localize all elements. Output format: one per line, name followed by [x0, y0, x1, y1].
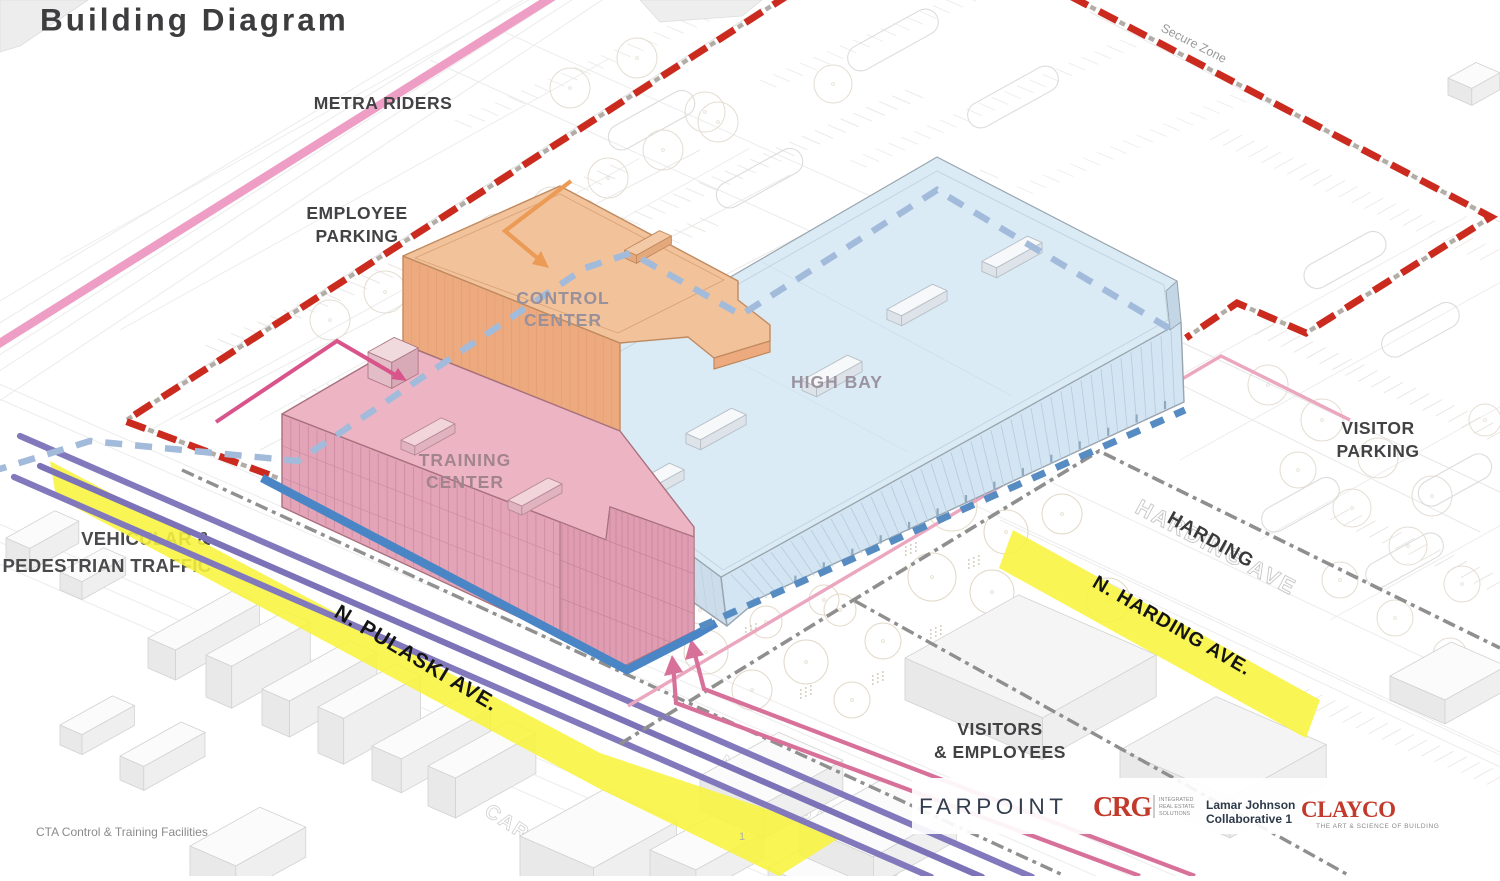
svg-text:PARKING: PARKING: [316, 226, 399, 246]
svg-text:CONTROL: CONTROL: [516, 288, 610, 308]
svg-text:TRAINING: TRAINING: [419, 450, 512, 470]
svg-text:REAL ESTATE: REAL ESTATE: [1159, 804, 1195, 810]
svg-text:CENTER: CENTER: [524, 310, 602, 330]
svg-text:HIGH BAY: HIGH BAY: [791, 372, 883, 392]
svg-text:CENTER: CENTER: [426, 472, 504, 492]
svg-text:METRA RIDERS: METRA RIDERS: [314, 93, 453, 113]
svg-text:CLAYCO: CLAYCO: [1301, 797, 1396, 822]
svg-text:Lamar Johnson: Lamar Johnson: [1206, 798, 1295, 812]
svg-text:VISITORS: VISITORS: [957, 719, 1042, 739]
svg-text:& EMPLOYEES: & EMPLOYEES: [934, 742, 1066, 762]
svg-text:Building Diagram: Building Diagram: [40, 2, 349, 38]
svg-text:EMPLOYEE: EMPLOYEE: [306, 203, 407, 223]
svg-text:SOLUTIONS: SOLUTIONS: [1159, 811, 1191, 817]
svg-text:CRG: CRG: [1093, 792, 1152, 823]
svg-text:Collaborative 1: Collaborative 1: [1206, 812, 1292, 826]
svg-text:INTEGRATED: INTEGRATED: [1159, 797, 1193, 803]
svg-text:THE ART & SCIENCE OF BUILDING: THE ART & SCIENCE OF BUILDING: [1316, 823, 1439, 830]
svg-text:CTA Control & Training Facilit: CTA Control & Training Facilities: [36, 825, 208, 839]
svg-text:PARKING: PARKING: [1337, 441, 1420, 461]
svg-text:FARPOINT: FARPOINT: [919, 794, 1068, 819]
svg-text:1: 1: [739, 831, 745, 843]
svg-text:VISITOR: VISITOR: [1341, 418, 1414, 438]
